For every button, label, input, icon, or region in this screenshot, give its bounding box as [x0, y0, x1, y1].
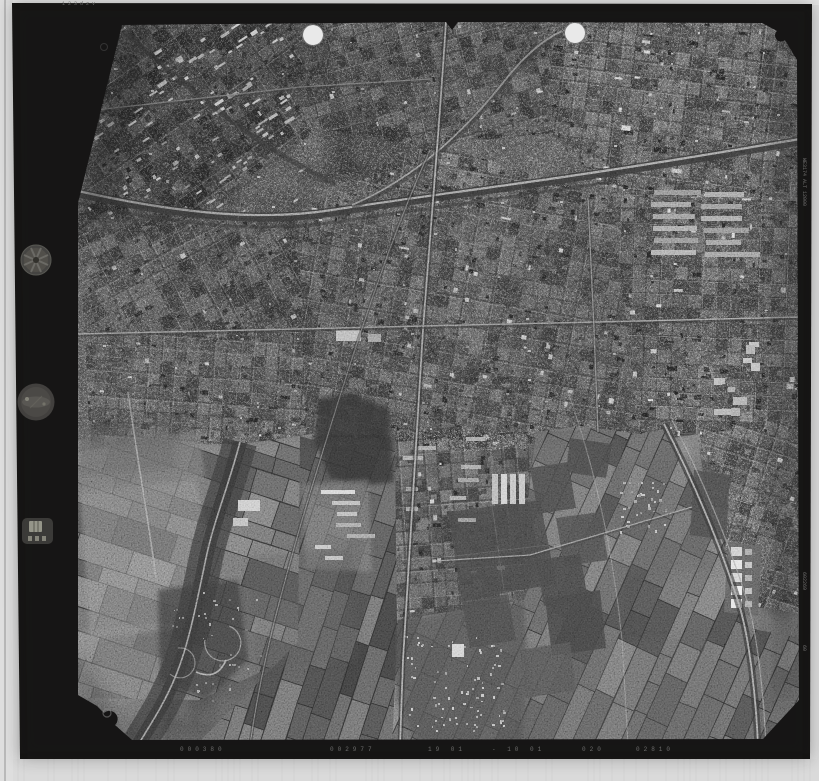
svg-text:WE3174 ALT 12000: WE3174 ALT 12000 [801, 158, 807, 206]
svg-text:- 10 01: - 10 01 [492, 746, 545, 753]
svg-text:19 01: 19 01 [428, 746, 466, 753]
svg-text:02810: 02810 [636, 746, 674, 753]
svg-text:60: 60 [801, 645, 807, 651]
svg-text:002977: 002977 [330, 746, 376, 753]
svg-text:1 2 3 d z v: 1 2 3 d z v [62, 1, 95, 7]
svg-text:602269: 602269 [801, 572, 807, 590]
svg-text:000380: 000380 [180, 746, 226, 753]
svg-text:020: 020 [582, 746, 605, 753]
